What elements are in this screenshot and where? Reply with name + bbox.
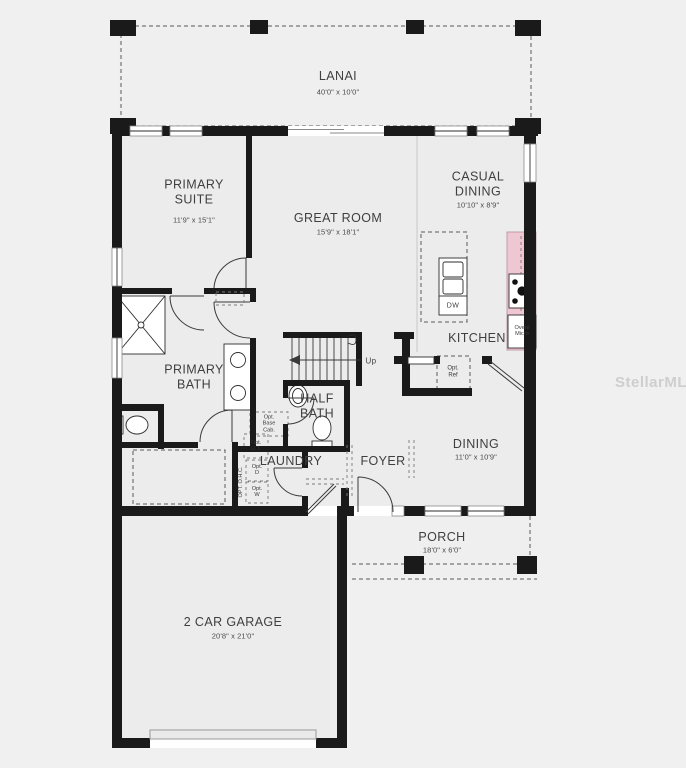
porch-label: PORCH (418, 530, 465, 544)
opt-ref-label: Opt. Ref (443, 365, 463, 378)
primary-suite-dims: 11'9" x 15'1" (173, 216, 215, 225)
up-label: Up (365, 357, 376, 366)
floor-plan-drawing (0, 0, 686, 768)
garage-label: 2 CAR GARAGE (184, 615, 283, 629)
opt-washer-label: Opt. W (249, 486, 265, 499)
laundry-label: LAUNDRY (260, 454, 322, 468)
opt-ohc-label: OPT. O.H.C. (238, 466, 244, 497)
front-door-opening (354, 506, 392, 516)
kitchen-label: KITCHEN (448, 331, 506, 345)
vanity-sinks (224, 344, 252, 410)
garage-dims: 20'8" x 21'0" (212, 632, 254, 641)
dw-label: DW (447, 303, 459, 310)
foyer-label: FOYER (360, 454, 405, 468)
dining-label: DINING (453, 437, 499, 451)
casual-dining-label: CASUAL DINING (447, 169, 509, 199)
great-room-dims: 15'9" x 18'1" (317, 228, 359, 237)
sliding-door (288, 126, 384, 136)
toilet-half-bath (312, 416, 332, 448)
porch-dims: 18'0" x 6'0" (423, 546, 461, 555)
casual-dining-dims: 10'10" x 8'9" (457, 201, 499, 210)
shower-fixture (117, 296, 165, 354)
opt-dryer-label: Opt. D (249, 464, 265, 477)
lanai-label: LANAI (319, 69, 357, 83)
sink-basin (443, 279, 463, 294)
stellar-mls-watermark: StellarMLS (615, 374, 686, 391)
dining-dims: 11'0" x 10'9" (455, 453, 497, 462)
opt-base-cab-label: Opt. Base Cab. (258, 415, 281, 434)
lanai-dims: 40'0" x 10'0" (317, 88, 359, 97)
primary-bath-label: PRIMARY BATH (161, 362, 227, 392)
half-bath-label: HALF BATH (297, 391, 337, 421)
oven-micro-label: Oven/ Micro (510, 325, 534, 338)
primary-suite-label: PRIMARY SUITE (161, 177, 227, 207)
garage-entry-opening (308, 506, 337, 516)
floor-plan: LANAI 40'0" x 10'0" PRIMARY SUITE 11'9" … (0, 0, 686, 768)
great-room-label: GREAT ROOM (294, 211, 382, 225)
kitchen-closet-door (408, 357, 434, 364)
garage-door (150, 730, 316, 739)
sink-basin (443, 262, 463, 277)
opt-ut-label: Opt. U.T. (247, 440, 266, 453)
